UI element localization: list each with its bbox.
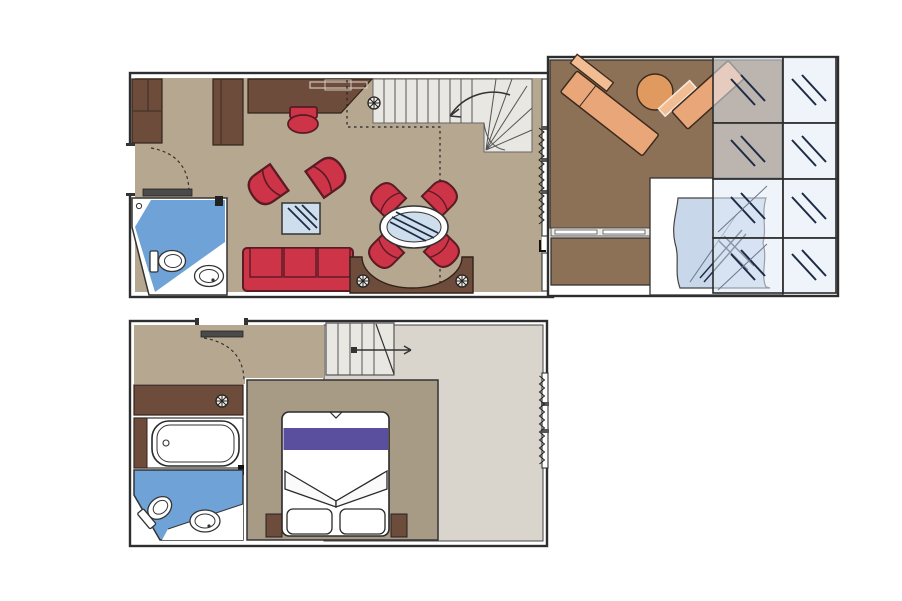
- lower-deck-plan: [130, 318, 549, 546]
- wardrobe-right: [213, 79, 243, 145]
- balcony: [548, 52, 838, 296]
- duplex-suite-floorplan: [0, 0, 902, 601]
- door-leaf: [201, 331, 243, 337]
- sprinkler-icon: [357, 275, 369, 287]
- sofa: [243, 248, 353, 291]
- floorplan-canvas: [0, 0, 902, 601]
- lower-balcony-floor: [551, 238, 655, 285]
- sprinkler-icon: [368, 97, 380, 109]
- washbasin: [195, 266, 224, 287]
- toilet: [150, 251, 186, 273]
- nightstand: [266, 514, 282, 537]
- glass-panels: [713, 57, 836, 293]
- sprinkler-icon: [456, 275, 468, 287]
- nightstand: [391, 514, 407, 537]
- sliding-door: [143, 189, 192, 196]
- guest-bathroom: [132, 189, 227, 295]
- upper-deck-plan: [126, 52, 838, 297]
- sprinkler-icon: [216, 395, 228, 407]
- double-bed: [282, 412, 389, 536]
- coffee-table: [282, 203, 320, 234]
- washbasin: [190, 510, 220, 532]
- bathtub-niche: [134, 418, 244, 475]
- wardrobe: [134, 385, 243, 415]
- wardrobe-left: [132, 79, 162, 143]
- pillow: [287, 509, 332, 534]
- pillow: [340, 509, 385, 534]
- desk-stool: [288, 107, 318, 133]
- bed-runner: [284, 428, 389, 450]
